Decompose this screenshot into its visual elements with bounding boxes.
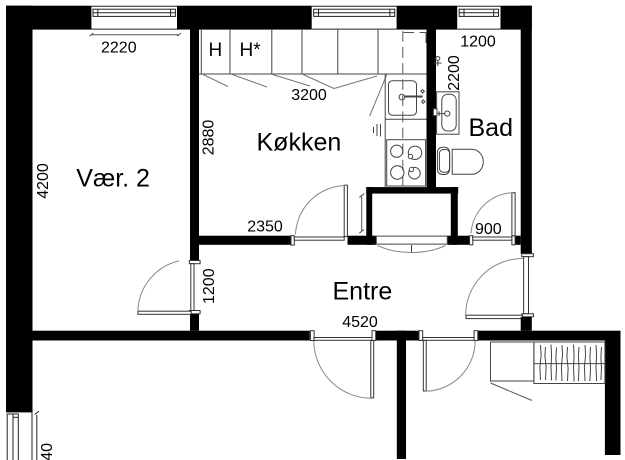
svg-text:Køkken: Køkken xyxy=(257,129,342,157)
svg-text:4520: 4520 xyxy=(342,314,378,331)
svg-text:H*: H* xyxy=(240,40,262,61)
svg-text:Bad: Bad xyxy=(469,114,513,142)
svg-text:2350: 2350 xyxy=(247,218,283,235)
svg-text:H: H xyxy=(209,40,223,61)
svg-text:900: 900 xyxy=(475,221,502,238)
svg-text:Vær. 2: Vær. 2 xyxy=(76,165,150,193)
svg-text:3200: 3200 xyxy=(291,87,327,104)
svg-text:Entre: Entre xyxy=(333,278,393,306)
svg-text:1200: 1200 xyxy=(460,34,496,51)
svg-text:4200: 4200 xyxy=(35,163,52,199)
svg-text:1200: 1200 xyxy=(201,268,218,304)
svg-text:2640: 2640 xyxy=(39,443,56,460)
svg-text:2880: 2880 xyxy=(201,120,218,156)
svg-text:2220: 2220 xyxy=(101,40,137,57)
svg-text:2200: 2200 xyxy=(446,55,463,91)
